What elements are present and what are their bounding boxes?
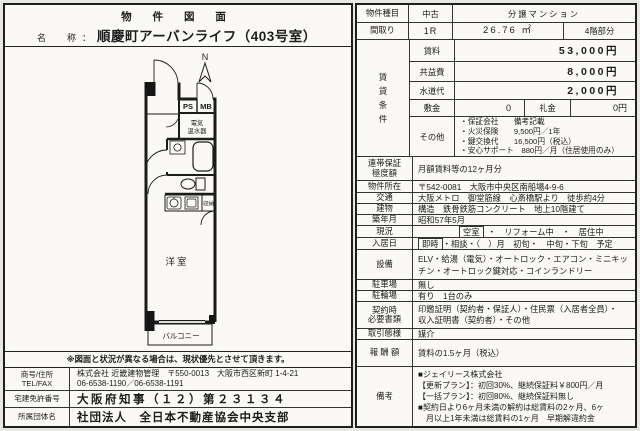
deposit-label: 敷金 xyxy=(410,100,455,116)
company-name-line: 株式会社 近畿建物管理 〒550-0013 大阪市西区新町 1-4-21 xyxy=(77,369,351,380)
bicycle-parking-label: 駐輪場 xyxy=(357,291,413,301)
floorplan-area: N xyxy=(5,47,351,351)
row-built-date: 築年月 昭和57年5月 xyxy=(357,215,635,226)
company-row-name-address: 商号/住所 TEL/FAX 株式会社 近畿建物管理 〒550-0013 大阪市西… xyxy=(5,368,351,391)
current-status-label: 現況 xyxy=(357,226,413,237)
guarantee-limit-label: 連帯保証 極度額 xyxy=(357,157,413,180)
association-label: 所属団体名 xyxy=(5,408,70,426)
company-label-name-tel: 商号/住所 TEL/FAX xyxy=(5,368,70,390)
building-value: 構造 鉄骨鉄筋コンクリート 地上10階建て xyxy=(413,204,635,214)
key-money-value: 0円 xyxy=(571,100,635,116)
other-fees-value: ・保証会社 備考記載 ・火災保険 9,500円／1年 ・鍵交換代 16,500円… xyxy=(455,117,635,156)
row-bicycle-parking: 駐輪場 有り 1台のみ xyxy=(357,291,635,302)
property-spec-table: 物件種目 中古 分譲マンション 間取り 1R 26.76 ㎡ 4階部分 賃 貸 … xyxy=(355,3,637,428)
main-room-label: 洋室 xyxy=(165,256,188,268)
row-property-type: 物件種目 中古 分譲マンション xyxy=(357,5,635,23)
property-type-used: 中古 xyxy=(409,5,453,22)
other-fees-label: その他 xyxy=(410,117,455,156)
property-drawing-sheet: 物 件 図 面 名 称： 順慶町アーバンライフ（403号室） N xyxy=(3,3,353,428)
property-name-line: 名 称： 順慶町アーバンライフ（403号室） xyxy=(5,25,351,45)
key-money-label: 礼金 xyxy=(525,100,571,116)
row-address: 物件所在 〒542-0081 大阪市中央区南船場4-9-6 xyxy=(357,181,635,193)
layout-type: 1R xyxy=(409,23,453,39)
address-value: 〒542-0081 大阪市中央区南船場4-9-6 xyxy=(413,181,635,192)
balcony-label: バルコニー xyxy=(162,332,199,341)
company-row-association: 所属団体名 社団法人 全日本不動産協会中央支部 xyxy=(5,408,351,426)
window xyxy=(159,321,205,324)
row-deposit-key: 敷金 0 礼金 0円 xyxy=(410,100,635,117)
transaction-type-label: 取引態様 xyxy=(357,329,413,339)
row-commission: 報 酬 額 賃料の1.5ヶ月（税込） xyxy=(357,340,635,367)
movein-date-value: 即時 ・相談・（ ）月 初旬・ 中旬・下旬 予定 xyxy=(413,238,635,249)
transaction-type-value: 媒介 xyxy=(413,329,635,339)
contract-documents-label: 契約時 必要書類 xyxy=(357,302,413,328)
remarks-value: ■ジェイリース株式会社 【更新プラン】：初回30%、継続保証料￥800円／月 【… xyxy=(413,367,635,426)
bath-vanity-icon xyxy=(170,141,185,154)
access-label: 交通 xyxy=(357,193,413,203)
sheet-header: 物 件 図 面 名 称： 順慶町アーバンライフ（403号室） xyxy=(5,5,351,47)
mb-label: MB xyxy=(200,102,212,111)
meterbox-door-arc xyxy=(197,83,213,99)
row-rent: 賃料 53,000円 xyxy=(410,40,635,62)
rent-conditions-label: 賃 貸 条 件 xyxy=(357,40,410,156)
movein-selected: 即時 xyxy=(418,238,443,250)
company-info-table: 商号/住所 TEL/FAX 株式会社 近畿建物管理 〒550-0013 大阪市西… xyxy=(5,367,351,426)
commission-label: 報 酬 額 xyxy=(357,340,413,366)
rent-label: 賃料 xyxy=(410,40,455,61)
company-tel-line: 06-6538-1190／06-6538-1191 xyxy=(77,379,351,390)
toilet-bowl-icon xyxy=(181,179,195,189)
built-date-label: 築年月 xyxy=(357,215,413,225)
rent-value: 53,000円 xyxy=(455,40,635,61)
bath-sink-icon xyxy=(174,144,181,151)
company-row-license: 宅建免許番号 大阪府知事（１２）第２３１３４ xyxy=(5,391,351,408)
layout-area: 26.76 ㎡ xyxy=(453,23,564,39)
water-fee-label: 水道代 xyxy=(410,82,455,99)
equipment-value: ELV・給湯（電気）・オートロック・エアコン・ミニキッチン・オートロック鍵対応・… xyxy=(413,250,635,279)
license-label: 宅建免許番号 xyxy=(5,391,70,407)
row-common-fee: 共益費 8,000円 xyxy=(410,62,635,82)
kitchen-counter xyxy=(165,195,202,211)
water-heater-label-2: 温水器 xyxy=(188,126,208,135)
contract-documents-value: 印鑑証明（契約者・保証人）・住民票（入居者全員）・ 収入証明書（契約者）・その他 xyxy=(413,302,635,328)
row-access: 交通 大阪メトロ 御堂筋線 心斎橋駅より 徒歩約4分 xyxy=(357,193,635,204)
movein-date-label: 入居日 xyxy=(357,238,413,249)
access-value: 大阪メトロ 御堂筋線 心斎橋駅より 徒歩約4分 xyxy=(413,193,635,203)
equipment-label: 設備 xyxy=(357,250,413,279)
row-other-fees: その他 ・保証会社 備考記載 ・火災保険 9,500円／1年 ・鍵交換代 16,… xyxy=(410,117,635,156)
parking-label: 駐車場 xyxy=(357,280,413,290)
entry-door-arc xyxy=(154,60,178,84)
row-current-status: 現況 空室 ・ リフォーム中 ・ 居住中 xyxy=(357,226,635,238)
built-date-value: 昭和57年5月 xyxy=(413,215,635,225)
row-contract-documents: 契約時 必要書類 印鑑証明（契約者・保証人）・住民票（入居者全員）・ 収入証明書… xyxy=(357,302,635,329)
common-fee-label: 共益費 xyxy=(410,62,455,81)
property-name-label: 名 称： xyxy=(37,31,97,44)
parking-value: 無し xyxy=(413,280,635,290)
hall-door-arc xyxy=(166,114,179,127)
current-status-selected: 空室 xyxy=(459,226,484,238)
water-heater-label-1: 電気 xyxy=(191,118,204,127)
common-fee-value: 8,000円 xyxy=(455,62,635,81)
floorplan-svg: N xyxy=(5,47,351,355)
layout-floor: 4階部分 xyxy=(564,23,635,39)
property-type-category: 分譲マンション xyxy=(453,5,635,22)
row-parking: 駐車場 無し xyxy=(357,280,635,291)
row-remarks: 備考 ■ジェイリース株式会社 【更新プラン】：初回30%、継続保証料￥800円／… xyxy=(357,367,635,426)
row-water-fee: 水道代 2,000円 xyxy=(410,82,635,100)
ps-label: PS xyxy=(183,102,193,111)
north-arrow-icon xyxy=(199,63,211,82)
movein-options: ・相談・（ ）月 初旬・ 中旬・下旬 予定 xyxy=(443,239,613,249)
row-building: 建物 構造 鉄骨鉄筋コンクリート 地上10階建て xyxy=(357,204,635,215)
rent-conditions-group: 賃 貸 条 件 賃料 53,000円 共益費 8,000円 水道代 2,000円… xyxy=(357,40,635,157)
remarks-label: 備考 xyxy=(357,367,413,426)
layout-label: 間取り xyxy=(357,23,409,39)
association-name: 社団法人 全日本不動産協会中央支部 xyxy=(77,409,351,425)
commission-value: 賃料の1.5ヶ月（税込） xyxy=(413,340,635,366)
bicycle-parking-value: 有り 1台のみ xyxy=(413,291,635,301)
building-label: 建物 xyxy=(357,204,413,214)
address-label: 物件所在 xyxy=(357,181,413,192)
closet-door-arc xyxy=(201,211,215,225)
toilet-door-arc xyxy=(148,175,167,194)
row-guarantee-limit: 連帯保証 極度額 月額賃料等の12ヶ月分 xyxy=(357,157,635,181)
deposit-value: 0 xyxy=(455,100,525,116)
company-name-address-value: 株式会社 近畿建物管理 〒550-0013 大阪市西区新町 1-4-21 06-… xyxy=(70,368,351,390)
row-layout: 間取り 1R 26.76 ㎡ 4階部分 xyxy=(357,23,635,40)
water-fee-value: 2,000円 xyxy=(455,82,635,99)
bathroom-door-arc xyxy=(145,150,167,172)
guarantee-limit-value: 月額賃料等の12ヶ月分 xyxy=(413,157,635,180)
bathtub-icon xyxy=(193,142,213,171)
row-equipment: 設備 ELV・給湯（電気）・オートロック・エアコン・ミニキッチン・オートロック鍵… xyxy=(357,250,635,280)
storage-label: 収納 xyxy=(203,200,214,208)
current-status-options: ・ リフォーム中 ・ 居住中 xyxy=(488,227,604,237)
toilet-tank-icon xyxy=(196,178,205,190)
property-type-label: 物件種目 xyxy=(357,5,409,22)
compass-label: N xyxy=(202,52,209,62)
property-name-value: 順慶町アーバンライフ（403号室） xyxy=(97,25,317,45)
row-movein-date: 入居日 即時 ・相談・（ ）月 初旬・ 中旬・下旬 予定 xyxy=(357,238,635,250)
sheet-title: 物 件 図 面 xyxy=(5,5,351,24)
row-transaction-type: 取引態様 媒介 xyxy=(357,329,635,340)
current-status-value: 空室 ・ リフォーム中 ・ 居住中 xyxy=(413,226,635,237)
license-number: 大阪府知事（１２）第２３１３４ xyxy=(77,391,351,407)
